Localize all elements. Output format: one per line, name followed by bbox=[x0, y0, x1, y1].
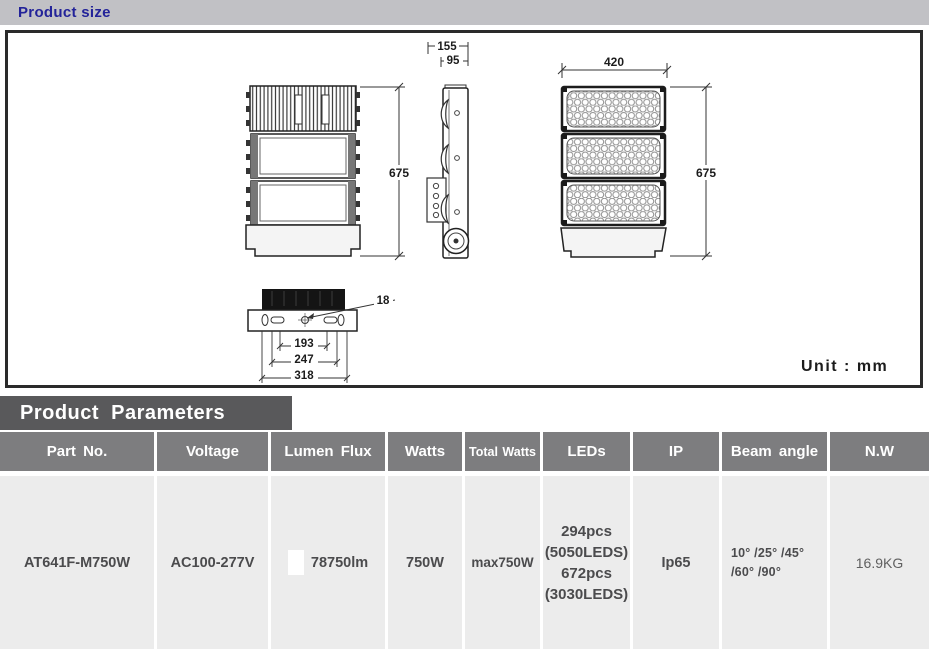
cell-total-watts: max750W bbox=[465, 476, 543, 649]
dim-hole-diameter: 18 bbox=[377, 295, 390, 307]
col-header-nw: N.W bbox=[830, 432, 929, 471]
col-header-total-watts: Total Watts bbox=[465, 432, 543, 471]
cell-net-weight: 16.9KG bbox=[830, 476, 929, 649]
col-header-lumen-flux: Lumen Flux bbox=[271, 432, 388, 471]
dim-side-body-width: 95 bbox=[447, 55, 460, 67]
page-header: Product size bbox=[0, 0, 929, 25]
lumen-value: 78750lm bbox=[311, 555, 368, 571]
table-header-row: Part No. Voltage Lumen Flux Watts Total … bbox=[0, 432, 929, 471]
cell-lumen-flux: 78750lm bbox=[271, 476, 388, 649]
col-header-voltage: Voltage bbox=[157, 432, 271, 471]
leds-line: (5050LEDS) bbox=[545, 542, 628, 563]
dim-front-height: 675 bbox=[696, 166, 716, 180]
table-data-row: AT641F-M750W AC100-277V 78750lm 750W max… bbox=[0, 476, 929, 649]
side-view-drawing: 155 95 bbox=[427, 39, 469, 258]
parameters-header: Product Parameters bbox=[0, 396, 292, 430]
col-header-leds: LEDs bbox=[543, 432, 633, 471]
unit-label: Unit : mm bbox=[801, 358, 888, 375]
front-view-drawing: 420 bbox=[558, 55, 719, 260]
dim-mount-span-inner: 193 bbox=[294, 338, 313, 350]
cell-watts: 750W bbox=[388, 476, 465, 649]
cell-beam-angle: 10° /25° /45° /60° /90° bbox=[722, 476, 830, 649]
beam-angle-line: /60° /90° bbox=[731, 563, 781, 582]
cell-leds: 294pcs (5050LEDS) 672pcs (3030LEDS) bbox=[543, 476, 633, 649]
cell-part-no: AT641F-M750W bbox=[0, 476, 157, 649]
col-header-part-no: Part No. bbox=[0, 432, 157, 471]
beam-angle-line: 10° /25° /45° bbox=[731, 544, 804, 563]
dim-rear-height: 675 bbox=[389, 166, 409, 180]
dim-front-width: 420 bbox=[604, 55, 624, 69]
leds-line: (3030LEDS) bbox=[545, 584, 628, 605]
leds-line: 294pcs bbox=[561, 521, 612, 542]
parameters-table: Part No. Voltage Lumen Flux Watts Total … bbox=[0, 432, 929, 649]
technical-drawing: 675 155 95 bbox=[8, 33, 920, 385]
lumen-swatch bbox=[288, 550, 304, 575]
page-title: Product size bbox=[0, 4, 111, 21]
rear-view-drawing: 675 bbox=[246, 83, 412, 260]
dim-mount-span-outer: 318 bbox=[294, 370, 314, 382]
dim-mount-span-middle: 247 bbox=[294, 354, 313, 366]
col-header-ip: IP bbox=[633, 432, 722, 471]
parameters-title: Product Parameters bbox=[0, 402, 225, 425]
cell-voltage: AC100-277V bbox=[157, 476, 271, 649]
col-header-watts: Watts bbox=[388, 432, 465, 471]
leds-line: 672pcs bbox=[561, 563, 612, 584]
bottom-view-drawing: 18 193 247 318 bbox=[248, 289, 395, 383]
product-size-panel: 675 155 95 bbox=[5, 30, 923, 388]
dim-side-overall-width: 155 bbox=[437, 41, 457, 53]
cell-ip: Ip65 bbox=[633, 476, 722, 649]
col-header-beam-angle: Beam angle bbox=[722, 432, 830, 471]
